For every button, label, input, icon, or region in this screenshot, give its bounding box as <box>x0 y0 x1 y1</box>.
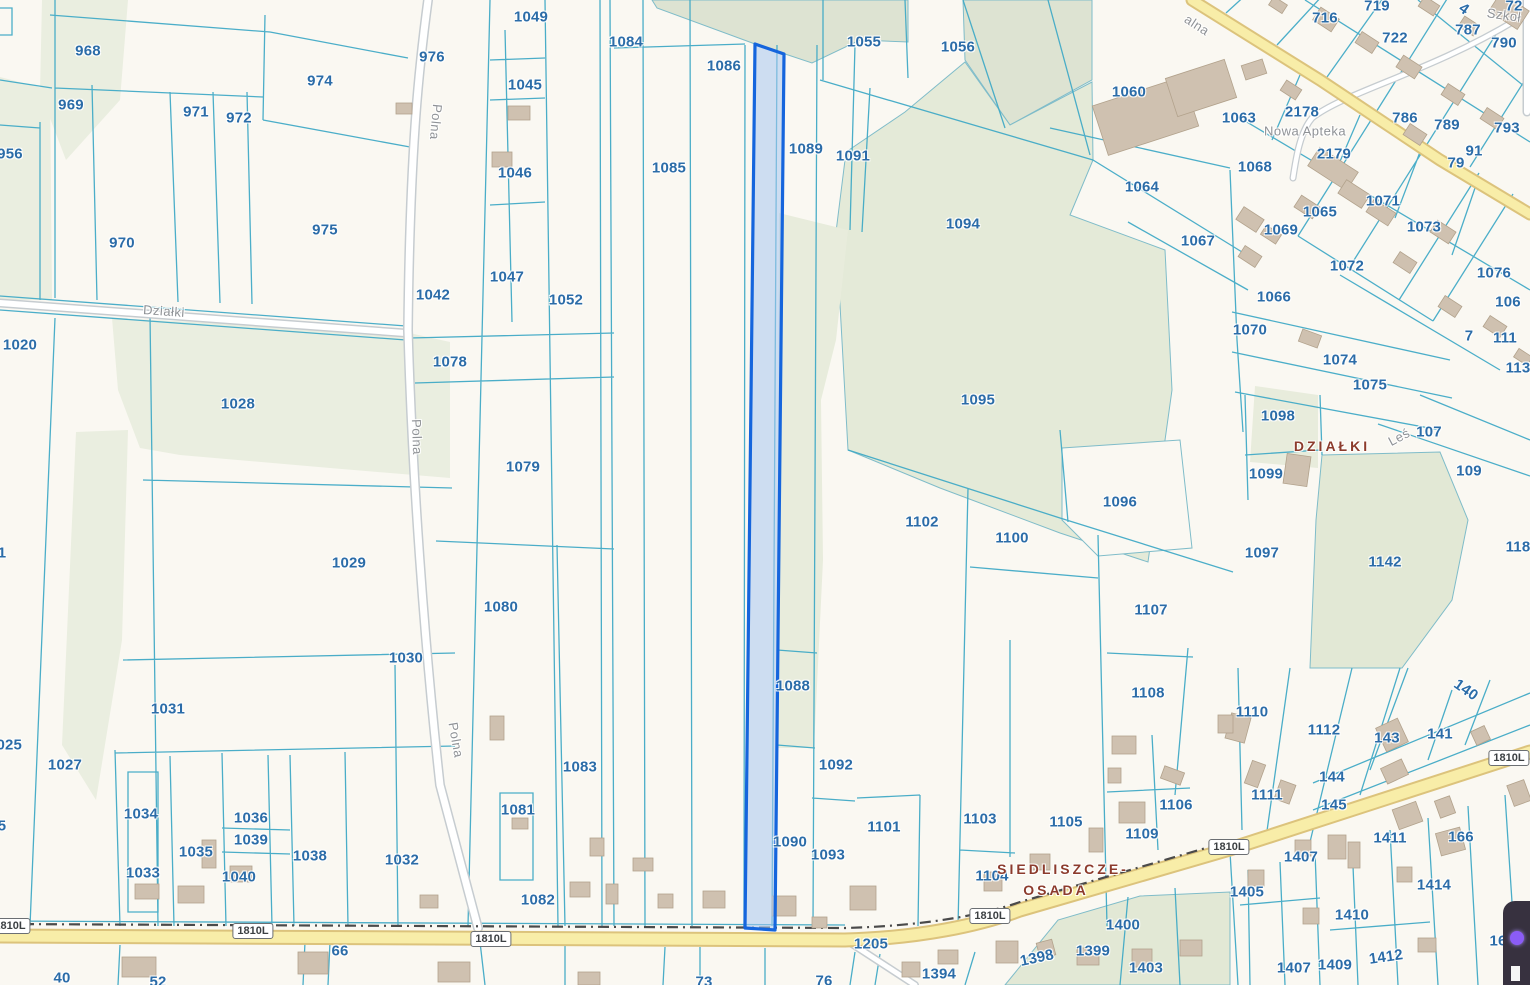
map-geometry <box>0 0 1530 985</box>
building <box>1418 0 1440 16</box>
building <box>606 884 618 904</box>
building <box>135 884 159 899</box>
corner-widget[interactable] <box>1503 901 1530 985</box>
building <box>420 895 438 908</box>
building <box>1298 329 1321 348</box>
building <box>570 882 590 897</box>
building <box>1244 760 1265 787</box>
building <box>1236 207 1264 233</box>
building <box>1077 948 1099 965</box>
building <box>590 838 604 856</box>
building <box>1313 7 1340 32</box>
building <box>1355 32 1379 54</box>
building <box>1393 252 1417 274</box>
building <box>508 106 530 120</box>
building <box>1303 908 1319 924</box>
building <box>1119 802 1145 823</box>
building <box>492 152 512 167</box>
building <box>1380 759 1408 784</box>
building <box>1441 84 1465 106</box>
widget-logo <box>1511 966 1520 981</box>
building <box>490 716 504 740</box>
building <box>396 103 412 114</box>
building <box>658 894 673 908</box>
building <box>633 858 653 871</box>
building <box>1112 736 1136 754</box>
building <box>1366 199 1396 226</box>
building <box>1392 801 1423 829</box>
building <box>578 972 600 985</box>
building <box>1435 827 1465 856</box>
building <box>938 950 958 964</box>
building <box>1295 840 1311 856</box>
building <box>1132 949 1152 967</box>
building <box>1483 316 1507 338</box>
building <box>1328 835 1346 859</box>
building <box>1438 296 1462 318</box>
building <box>1418 938 1436 952</box>
building <box>1260 225 1281 244</box>
building <box>996 941 1018 963</box>
building <box>1458 16 1480 36</box>
building <box>178 886 204 903</box>
highlighted-parcel[interactable] <box>745 44 784 930</box>
building <box>1108 768 1121 783</box>
building <box>812 917 827 928</box>
building <box>984 872 1002 891</box>
building <box>1434 796 1455 818</box>
building <box>902 962 920 977</box>
building <box>202 840 216 868</box>
building <box>1514 348 1530 365</box>
cadastral-map[interactable]: 9689699719729749769569709751042104910451… <box>0 0 1530 985</box>
widget-icon <box>1510 931 1524 945</box>
building <box>1248 870 1264 886</box>
building <box>1430 220 1456 244</box>
building <box>1471 726 1491 746</box>
building <box>1241 59 1267 80</box>
building <box>438 962 470 982</box>
building <box>1160 766 1184 785</box>
building <box>230 866 252 882</box>
building <box>1180 940 1202 956</box>
building <box>1089 828 1103 852</box>
building <box>1274 780 1296 804</box>
building <box>298 952 328 974</box>
building <box>122 957 156 977</box>
building <box>1294 195 1320 219</box>
building <box>1507 780 1530 807</box>
building <box>1165 59 1236 116</box>
building <box>1218 715 1233 733</box>
building <box>1269 0 1288 14</box>
building <box>1030 854 1050 870</box>
building <box>1283 453 1311 486</box>
building <box>1397 867 1412 882</box>
building <box>1348 842 1360 868</box>
building <box>1480 108 1504 130</box>
building <box>1280 80 1302 100</box>
building <box>1376 718 1409 752</box>
building <box>703 891 725 908</box>
building <box>850 886 876 910</box>
building <box>1238 246 1262 268</box>
building <box>512 818 528 829</box>
